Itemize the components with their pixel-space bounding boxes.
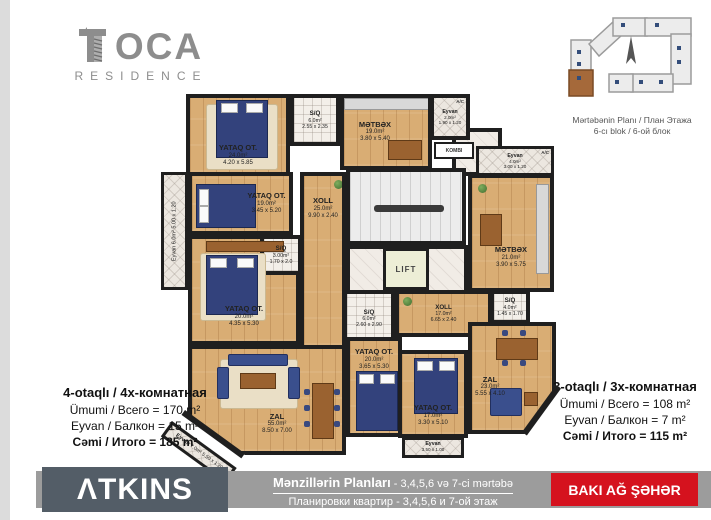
highlighted-block-6 bbox=[569, 70, 593, 96]
plant bbox=[403, 297, 412, 306]
room-name: YATAQ OT. bbox=[355, 348, 393, 357]
logo-subtitle: RESIDENCE bbox=[74, 69, 207, 83]
room-kitchen-2: MƏTBƏX21.0m²3.90 x 5.75 bbox=[468, 174, 554, 292]
coffee-table bbox=[240, 373, 276, 389]
room-dims: 2.60 x 2.90 bbox=[356, 322, 382, 328]
atkins-logo: ΛTKINS bbox=[42, 467, 228, 512]
room-name: YATAQ OT. bbox=[219, 144, 257, 153]
stair-handrail bbox=[374, 205, 444, 212]
apartment-sum: Cəmi / Итого = 185 m² bbox=[40, 434, 230, 451]
room-name: MƏTBƏX bbox=[359, 121, 391, 130]
room-bedroom-1: YATAQ OT.24.0m²4.20 x 5.85 bbox=[186, 94, 290, 176]
room-dims: 6.65 x 2.40 bbox=[431, 317, 457, 323]
room-name: XOLL bbox=[431, 304, 457, 311]
room-area: 20.0m² bbox=[225, 314, 263, 321]
site-plan-panel: Mərtəbənin Planı / План Этажа 6-cı blok … bbox=[556, 10, 708, 142]
room-dims: 3.30 x 5.10 bbox=[414, 420, 452, 427]
room-name: S/Q bbox=[356, 309, 382, 316]
room-area: 17.0m² bbox=[414, 413, 452, 420]
site-plan-caption-1: Mərtəbənin Planı / План Этажа bbox=[556, 115, 708, 126]
room-dims: 4.35 x 5.30 bbox=[225, 321, 263, 328]
apartment-info-right: 3-otaqlı / 3х-комнатная Ümumi / Всего = … bbox=[542, 378, 708, 445]
room-area: 3.00m² bbox=[270, 253, 293, 259]
kombi-label: KOMBI bbox=[446, 148, 463, 154]
logo-tower-t-icon bbox=[79, 25, 113, 63]
room-area: 19.0m² bbox=[247, 201, 285, 208]
apartment-title: 3-otaqlı / 3х-комнатная bbox=[542, 378, 708, 396]
room-dims: 3.00 x 1.20 bbox=[504, 164, 527, 169]
kitchen-table bbox=[480, 214, 502, 246]
dining-table bbox=[312, 383, 334, 439]
staircase bbox=[346, 168, 466, 245]
north-arrow-icon bbox=[626, 36, 636, 64]
dining-table bbox=[496, 338, 538, 360]
balcony-left: Eyvan 6.0m² 5.00 x 1.20 bbox=[161, 172, 188, 290]
footer-subtitle: Планировки квартир - 3,4,5,6 и 7-ой этаж bbox=[248, 496, 538, 508]
balcony-kitchen-1: A/C Eyvan2.0m²1.90 x 1.20 bbox=[430, 94, 470, 140]
bed bbox=[356, 371, 398, 431]
kitchen-counter bbox=[536, 184, 549, 274]
atkins-logo-text: ΛTKINS bbox=[77, 473, 193, 507]
room-dims: 8.50 x 7.00 bbox=[262, 428, 292, 435]
room-area: 21.0m² bbox=[495, 255, 527, 262]
room-dims: 3.50 x 1.00 bbox=[422, 448, 445, 453]
room-area: 20.0m² bbox=[355, 357, 393, 364]
room-name: YATAQ OT. bbox=[414, 404, 452, 413]
apartment-total: Ümumi / Всего = 170 m² bbox=[40, 402, 230, 418]
room-name: YATAQ OT. bbox=[225, 305, 263, 314]
room-name: S/Q bbox=[302, 110, 328, 117]
room-name: S/Q bbox=[497, 297, 523, 304]
room-dims: 5.00 x 1.20 bbox=[171, 201, 177, 228]
room-bedroom-5: YATAQ OT.17.0m²3.30 x 5.10 bbox=[398, 350, 468, 438]
balcony-kitchen-2: A/C Eyvan4.0m²3.00 x 1.20 bbox=[476, 146, 554, 176]
ac-label: A/C bbox=[541, 150, 549, 155]
room-dims: 4.20 x 5.85 bbox=[219, 160, 257, 167]
kitchen-table bbox=[388, 140, 422, 160]
room-area: 23.0m² bbox=[475, 384, 505, 391]
room-dims: 3.80 x 5.40 bbox=[359, 136, 391, 143]
room-bathroom-1: S/Q6.0m²2.55 x 2.35 bbox=[290, 94, 340, 146]
room-dims: 3.90 x 5.75 bbox=[495, 262, 527, 269]
room-name: S/Q bbox=[270, 245, 293, 252]
kitchen-counter bbox=[344, 98, 430, 110]
lift: LIFT bbox=[383, 248, 429, 290]
room-area: 24.0m² bbox=[219, 153, 257, 160]
apartment-sum: Cəmi / Итого = 115 m² bbox=[542, 428, 708, 445]
sofa bbox=[228, 354, 288, 366]
apartment-balcony: Eyvan / Балкон = 7 m² bbox=[542, 412, 708, 428]
room-dims: 3.45 x 5.20 bbox=[247, 208, 285, 215]
room-dims: 3.65 x 5.30 bbox=[355, 364, 393, 371]
page-edge-strip bbox=[0, 0, 10, 520]
room-dims: 5.55 x 4.10 bbox=[475, 391, 505, 398]
sofa bbox=[288, 367, 300, 399]
balcony-bottom: Eyvan3.50 x 1.00 bbox=[402, 437, 464, 458]
ac-label: A/C bbox=[456, 99, 464, 104]
room-name: MƏTBƏX bbox=[495, 246, 527, 255]
room-area: 19.0m² bbox=[359, 129, 391, 136]
room-dims: 1.90 x 1.20 bbox=[439, 120, 462, 125]
footer-title-suffix: - 3,4,5,6 və 7-ci mərtəbə bbox=[391, 478, 513, 490]
site-plan-caption-2: 6-cı blok / 6-ой блок bbox=[556, 126, 708, 137]
room-name: YATAQ OT. bbox=[247, 192, 285, 201]
flyer-page: OCA RESIDENCE Mər bbox=[0, 0, 711, 520]
room-hall-apartment-left: XOLL25.0m²9.90 x 2.40 bbox=[300, 172, 346, 349]
apartment-info-left: 4-otaqlı / 4х-комнатная Ümumi / Всего = … bbox=[40, 384, 230, 451]
room-dims: 1.70 x 2.0 bbox=[270, 259, 293, 265]
room-name: Eyvan bbox=[171, 246, 177, 261]
room-dims: 9.90 x 2.40 bbox=[308, 213, 338, 220]
plant bbox=[478, 184, 487, 193]
footer-title: Mənzillərin Planları bbox=[273, 475, 391, 490]
room-area: 25.0m² bbox=[308, 206, 338, 213]
apartment-title: 4-otaqlı / 4х-комнатная bbox=[40, 384, 230, 402]
room-bathroom-4: S/Q4.0m²1.45 x 1.70 bbox=[490, 290, 530, 324]
room-bedroom-4: YATAQ OT.20.0m²3.65 x 5.30 bbox=[346, 337, 402, 437]
baki-ag-seher-badge: BAKI AĞ ŞƏHƏR bbox=[551, 473, 698, 506]
toca-residence-logo: OCA RESIDENCE bbox=[46, 14, 236, 94]
room-kitchen-1: MƏTBƏX19.0m²3.80 x 5.40 bbox=[340, 94, 432, 170]
badge-label: BAKI AĞ ŞƏHƏR bbox=[568, 482, 680, 498]
apartment-total: Ümumi / Всего = 108 m² bbox=[542, 396, 708, 412]
footer-text: Mənzillərin Planları - 3,4,5,6 və 7-ci m… bbox=[248, 474, 538, 508]
logo-text: OCA bbox=[115, 30, 203, 63]
kombi-unit: KOMBI bbox=[434, 142, 474, 159]
site-plan-drawing bbox=[557, 10, 707, 110]
room-name: ZAL bbox=[475, 376, 505, 385]
room-name: ZAL bbox=[262, 413, 292, 422]
room-area: 55.0m² bbox=[262, 421, 292, 428]
coffee-table bbox=[524, 392, 538, 406]
room-area: 6.0m² bbox=[171, 230, 177, 244]
room-bedroom-2: YATAQ OT.19.0m²3.45 x 5.20 bbox=[188, 172, 293, 235]
lift-label: LIFT bbox=[396, 265, 417, 274]
room-name: XOLL bbox=[308, 197, 338, 206]
room-dims: 1.45 x 1.70 bbox=[497, 311, 523, 317]
room-dims: 2.55 x 2.35 bbox=[302, 124, 328, 130]
